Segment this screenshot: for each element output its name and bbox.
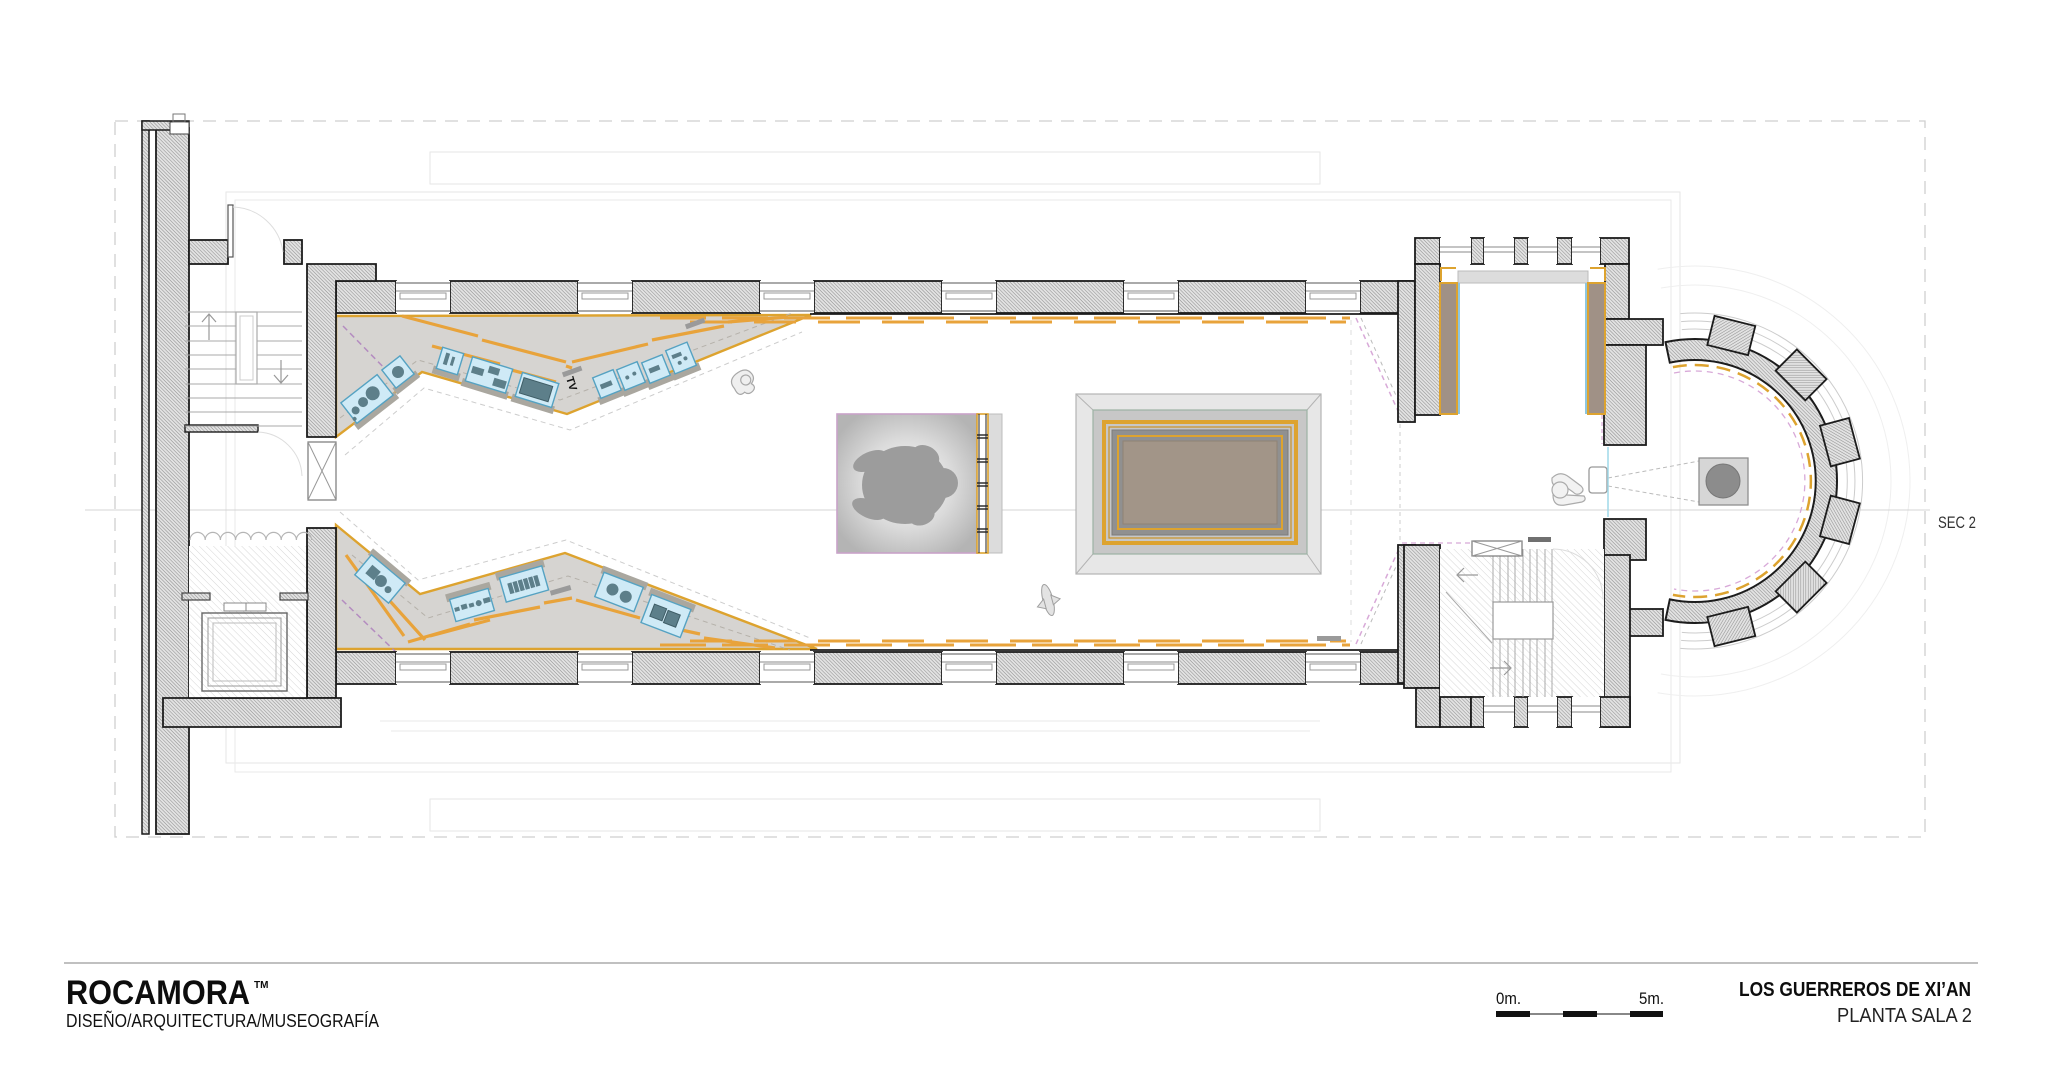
svg-text:SEC 2: SEC 2 [1938,513,1976,532]
svg-text:DISEÑO/ARQUITECTURA/MUSEOGRAFÍ: DISEÑO/ARQUITECTURA/MUSEOGRAFÍA [66,1010,379,1031]
svg-text:PLANTA SALA 2: PLANTA SALA 2 [1837,1005,1972,1027]
svg-text:TM: TM [254,980,268,991]
svg-text:0m.: 0m. [1496,990,1521,1008]
svg-text:ROCAMORA: ROCAMORA [66,974,250,1012]
svg-text:LOS GUERREROS DE XI’AN: LOS GUERREROS DE XI’AN [1739,978,1971,1001]
svg-text:5m.: 5m. [1639,990,1664,1008]
